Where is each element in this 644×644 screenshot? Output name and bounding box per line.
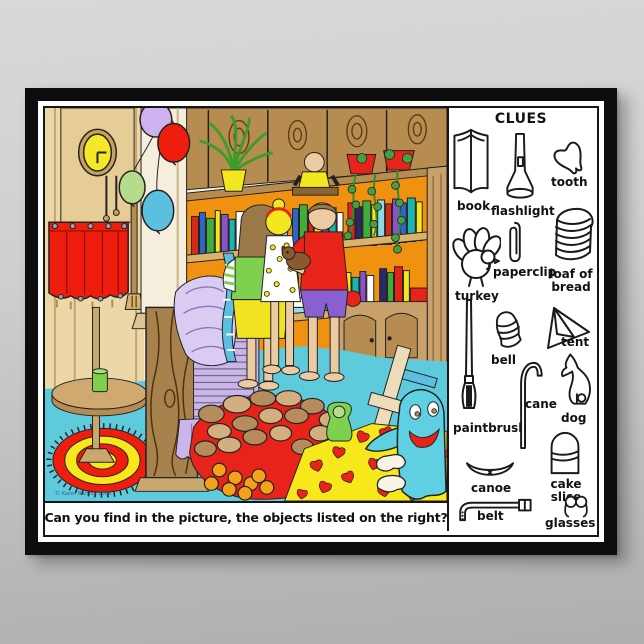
flashlight-icon [505, 132, 535, 202]
wall-backdrop: © Karen Barthol 2004 Can you find in the… [0, 0, 644, 644]
clue-label-canoe: canoe [471, 482, 511, 495]
green-cup [93, 369, 108, 392]
bell-icon [491, 308, 525, 352]
clues-panel: CLUES book flashlight tooth paperclip [447, 108, 593, 531]
clue-label-belt: belt [477, 510, 504, 523]
clue-label-tent: tent [561, 336, 589, 349]
clue-label-book: book [457, 200, 490, 213]
turkey-icon [451, 226, 501, 288]
cake-slice-icon [545, 430, 585, 476]
caption-strip: Can you find in the picture, the objects… [45, 501, 447, 531]
copyright-text: © Karen Barthol 2004 [55, 490, 112, 497]
loaf-of-bread-icon [549, 204, 595, 264]
clue-label-loaf-of-bread: loaf of bread [547, 268, 595, 293]
clue-label-glasses: glasses [545, 517, 595, 530]
scene-illustration: © Karen Barthol 2004 [45, 108, 447, 501]
red-banner [49, 222, 128, 309]
clue-label-tooth: tooth [551, 176, 588, 189]
dog-icon [557, 352, 593, 408]
book-icon [451, 124, 491, 200]
clue-label-cane: cane [525, 398, 557, 411]
caption-text: Can you find in the picture, the objects… [44, 510, 447, 525]
scene-cell: © Karen Barthol 2004 [45, 108, 447, 501]
green-figure [327, 402, 352, 441]
paintbrush-icon [461, 298, 477, 414]
tooth-icon [553, 140, 587, 176]
clue-label-flashlight: flashlight [491, 205, 555, 218]
paperclip-icon [507, 220, 523, 264]
clue-label-dog: dog [561, 412, 586, 425]
puzzle-poster: © Karen Barthol 2004 Can you find in the… [25, 88, 617, 555]
canoe-icon [465, 460, 515, 480]
poster-artwork: © Karen Barthol 2004 Can you find in the… [43, 106, 599, 537]
